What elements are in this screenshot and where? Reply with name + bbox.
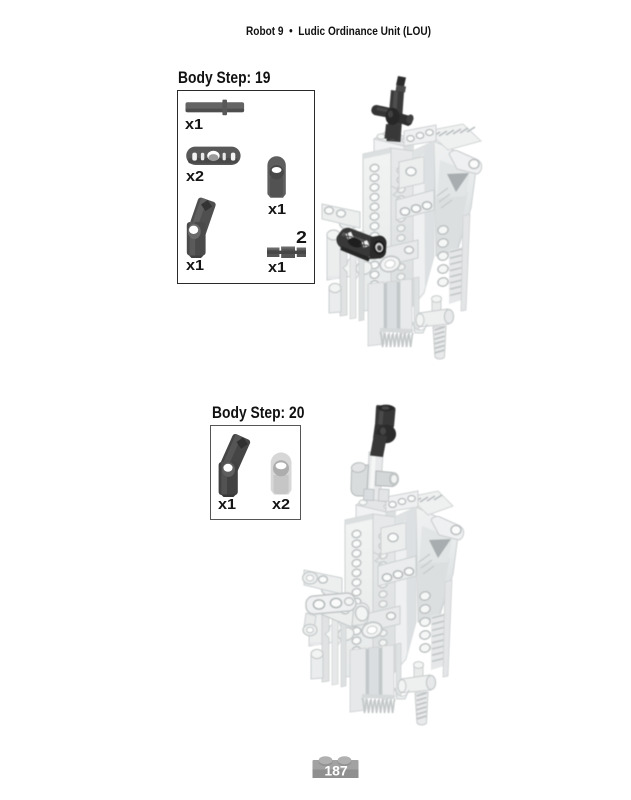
svg-text:187: 187 [324, 763, 348, 779]
